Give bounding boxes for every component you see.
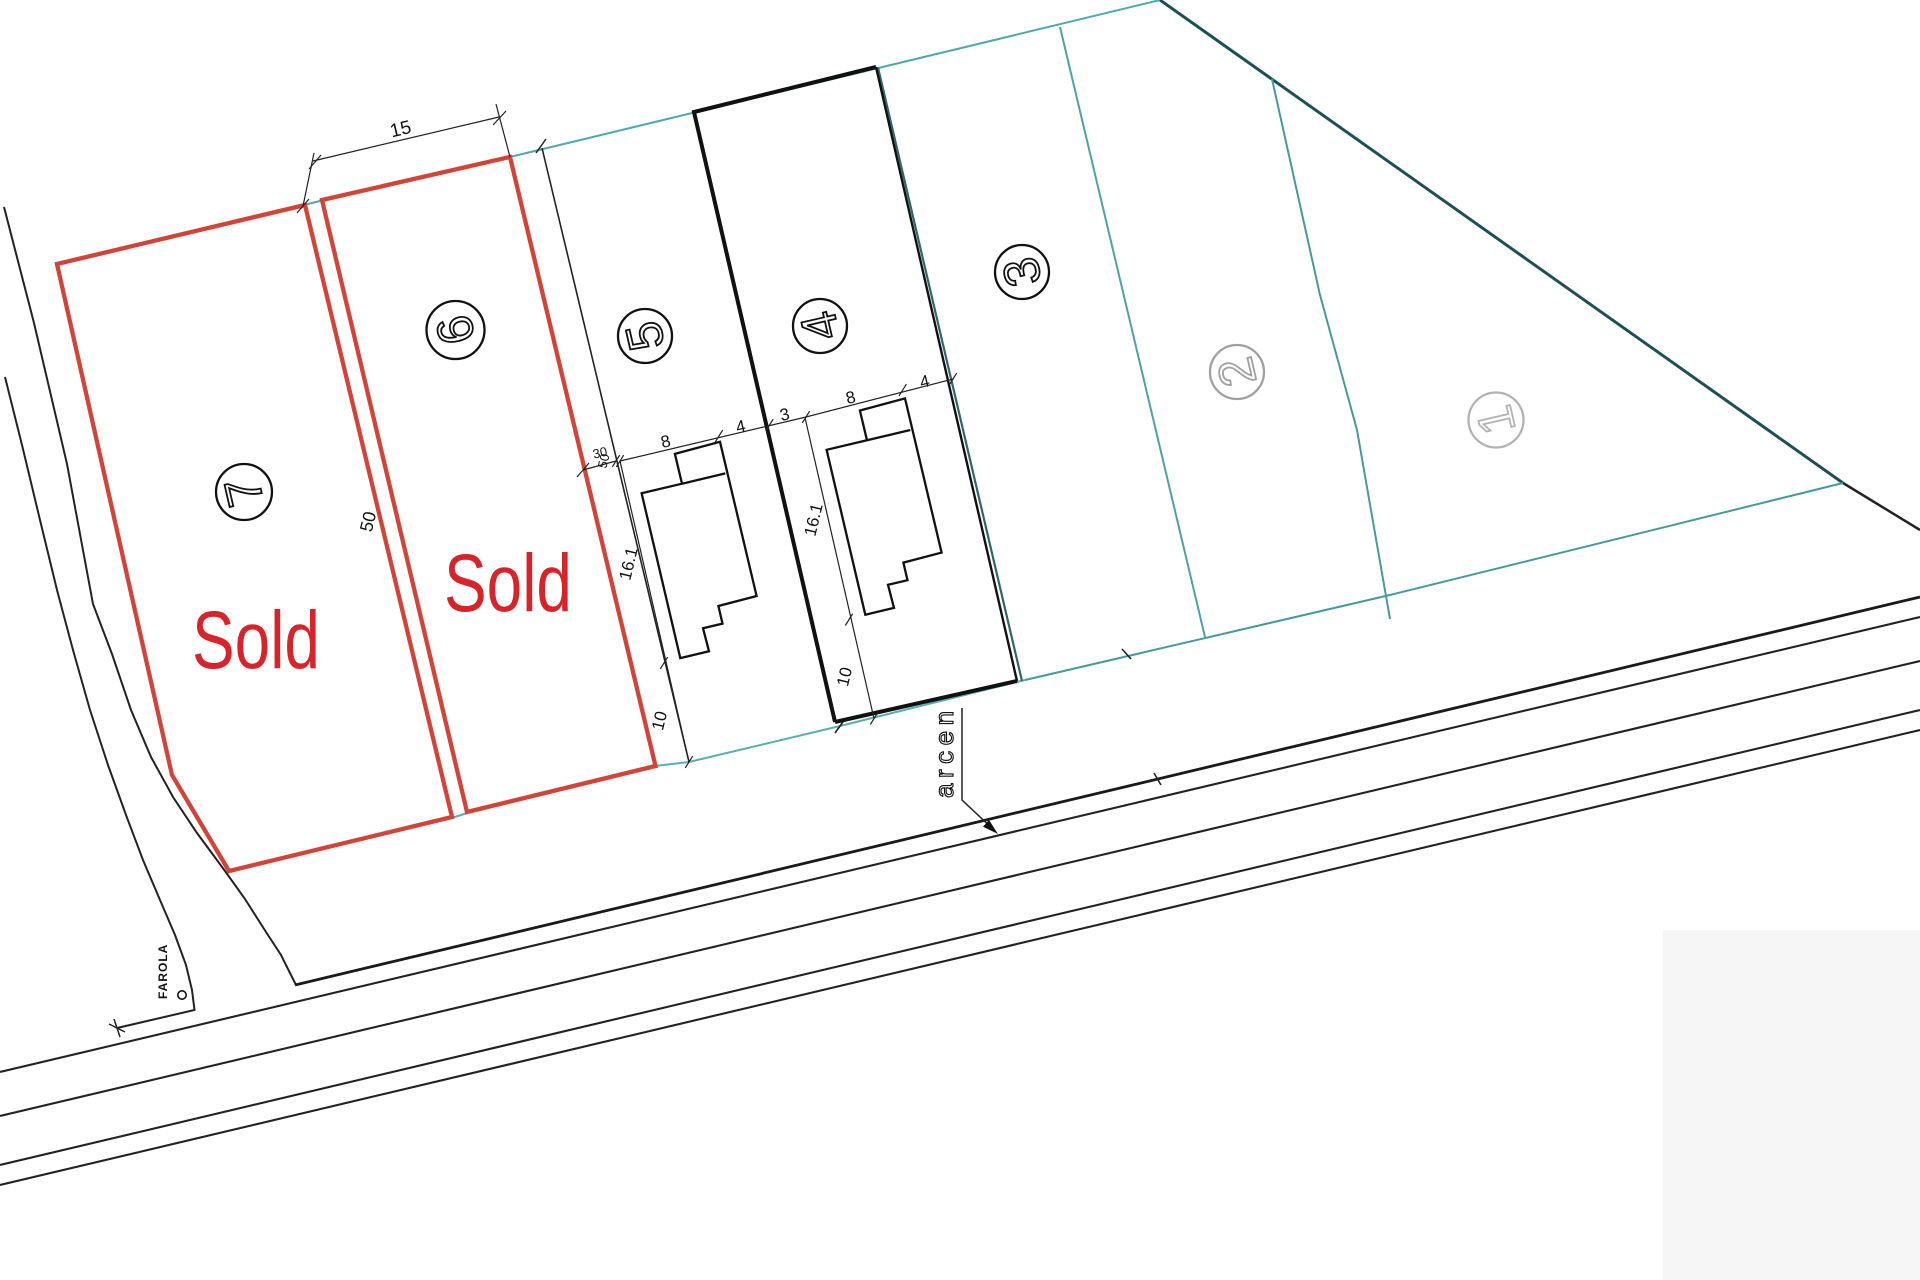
svg-text:Sold: Sold — [444, 536, 572, 629]
svg-text:Sold: Sold — [192, 593, 320, 686]
svg-text:arcen: arcen — [929, 705, 959, 798]
svg-text:FAROLA: FAROLA — [156, 944, 170, 999]
